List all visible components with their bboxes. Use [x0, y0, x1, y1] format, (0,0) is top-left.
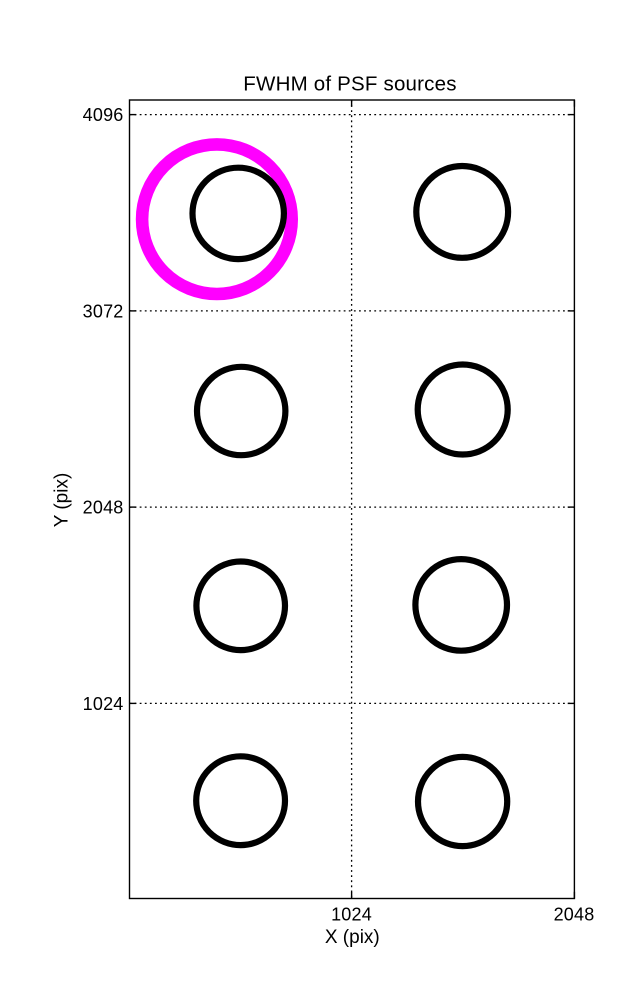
svg-text:X (pix): X (pix) — [325, 927, 380, 948]
svg-text:4096: 4096 — [83, 105, 124, 125]
svg-text:2048: 2048 — [83, 498, 124, 518]
svg-text:1024: 1024 — [83, 694, 124, 714]
svg-text:Y (pix): Y (pix) — [52, 473, 73, 528]
svg-text:2048: 2048 — [554, 905, 595, 925]
svg-text:FWHM of PSF sources: FWHM of PSF sources — [243, 73, 456, 96]
svg-text:1024: 1024 — [331, 905, 372, 925]
svg-text:3072: 3072 — [83, 301, 124, 321]
